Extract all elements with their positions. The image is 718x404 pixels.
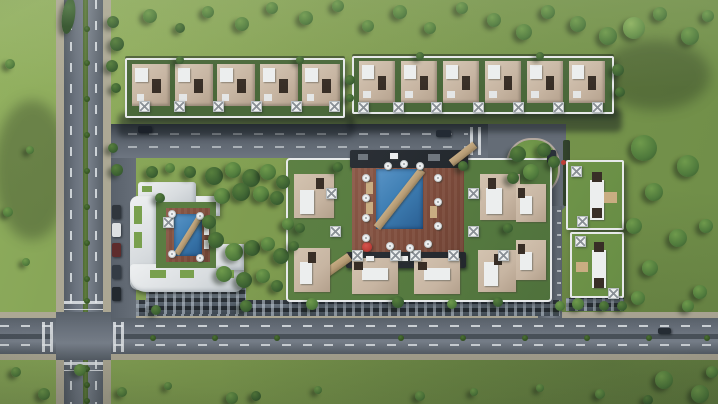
tree xyxy=(117,387,127,397)
pool-umbrella xyxy=(406,244,414,252)
median-shrub xyxy=(84,96,90,102)
roof-pergola xyxy=(592,102,603,113)
tree xyxy=(415,391,425,401)
tree xyxy=(226,392,238,404)
car xyxy=(658,328,671,334)
tree xyxy=(595,389,605,399)
pool-umbrella xyxy=(168,210,176,218)
roof-pergola xyxy=(358,102,369,113)
roof-pergola xyxy=(513,102,524,113)
tree xyxy=(107,16,119,28)
tree xyxy=(146,166,158,178)
tree xyxy=(555,301,565,311)
tree xyxy=(270,191,284,205)
tree xyxy=(653,7,667,21)
tree xyxy=(314,386,322,394)
roof-pergola xyxy=(163,217,174,228)
tree xyxy=(643,395,653,404)
median-shrub xyxy=(84,398,90,404)
tree xyxy=(111,164,123,176)
skylight xyxy=(308,252,316,263)
roof-pergola xyxy=(468,188,479,199)
roof-lounge xyxy=(520,252,532,270)
roof-pergola xyxy=(174,101,185,112)
roof-lounge xyxy=(362,268,388,280)
tree xyxy=(392,296,404,308)
median-shrub xyxy=(84,168,90,174)
tree xyxy=(164,382,172,390)
tree xyxy=(691,385,709,403)
scene xyxy=(0,0,718,404)
tree xyxy=(202,6,214,18)
roof-pergola xyxy=(352,250,363,261)
generated-scenery xyxy=(0,0,718,404)
roof-seating xyxy=(576,262,588,272)
tree xyxy=(184,166,196,178)
roof-lounge xyxy=(424,268,450,280)
median-shrub xyxy=(84,298,90,304)
tree xyxy=(702,10,714,22)
tree xyxy=(306,298,318,310)
roof-pergola xyxy=(468,226,479,237)
tree xyxy=(612,64,624,76)
parked-car xyxy=(112,265,121,279)
median-shrub xyxy=(84,382,90,388)
pool-umbrella xyxy=(362,214,370,222)
tree xyxy=(458,161,468,171)
tree xyxy=(516,24,532,40)
rooftop-equipment xyxy=(428,154,440,161)
roof-pergola xyxy=(390,250,401,261)
tree xyxy=(202,215,216,229)
roof-lounge xyxy=(484,262,498,286)
tree xyxy=(266,2,278,14)
tree xyxy=(143,9,157,23)
tree xyxy=(332,0,344,12)
median-shrub xyxy=(274,335,280,341)
roof-lounge xyxy=(300,262,312,284)
tree xyxy=(216,266,232,282)
roof-pergola xyxy=(431,102,442,113)
median-shrub xyxy=(584,335,590,341)
tree xyxy=(645,183,663,201)
tree xyxy=(669,229,687,247)
median-shrub xyxy=(460,335,466,341)
tree xyxy=(470,388,478,396)
roof-planter xyxy=(134,232,142,248)
tree xyxy=(615,87,625,97)
median-shrub xyxy=(84,204,90,210)
tree xyxy=(151,305,161,315)
roof-pergola xyxy=(577,216,588,227)
roof-pergola xyxy=(575,236,586,247)
median-shrub xyxy=(646,335,652,341)
roof-lounge xyxy=(300,190,314,214)
roof-pergola xyxy=(330,226,341,237)
tree xyxy=(3,207,13,217)
rooftop-equipment xyxy=(390,153,398,159)
tree xyxy=(108,143,118,153)
roof-planter xyxy=(180,270,194,278)
roof-pergola xyxy=(139,101,150,112)
roof-pergola xyxy=(393,102,404,113)
skylight xyxy=(592,208,602,218)
pool-table xyxy=(366,256,374,261)
median-shrub xyxy=(84,240,90,246)
tree xyxy=(631,291,645,305)
roof-pergola xyxy=(326,188,337,199)
tree xyxy=(706,366,718,378)
tree xyxy=(256,269,270,283)
tree xyxy=(240,300,252,312)
roof-pergola xyxy=(571,166,582,177)
tree xyxy=(276,175,290,189)
tree xyxy=(208,232,224,248)
parked-car xyxy=(112,223,121,237)
roof-pergola xyxy=(498,250,509,261)
tree xyxy=(570,16,586,32)
skylight xyxy=(594,278,604,288)
tree xyxy=(693,285,707,299)
roof-pergola xyxy=(448,250,459,261)
skylight xyxy=(488,178,496,189)
pool-umbrella xyxy=(362,234,370,242)
tree xyxy=(599,27,617,45)
tree xyxy=(536,384,544,392)
pool-umbrella xyxy=(400,160,408,168)
tree xyxy=(295,223,305,233)
tree xyxy=(251,391,261,401)
pool-umbrella xyxy=(362,174,370,182)
tree xyxy=(5,59,15,69)
pool-umbrella xyxy=(424,240,432,248)
tree xyxy=(176,56,184,64)
skylight xyxy=(594,242,604,252)
roof-lounge xyxy=(520,196,532,214)
tree xyxy=(235,17,249,31)
median-shrub xyxy=(212,335,218,341)
tree xyxy=(106,60,118,72)
sun-lounger xyxy=(366,182,373,194)
tree xyxy=(393,5,407,19)
car xyxy=(436,130,451,137)
tree xyxy=(111,83,121,93)
median-shrub xyxy=(398,335,404,341)
median-shrub xyxy=(84,26,90,32)
roof-pergola xyxy=(291,101,302,112)
tree xyxy=(299,11,313,25)
tree xyxy=(345,75,355,85)
tree xyxy=(110,37,124,51)
tree xyxy=(572,298,584,310)
tree xyxy=(536,52,544,60)
tree xyxy=(253,186,269,202)
skylight xyxy=(418,262,427,270)
parked-car xyxy=(112,205,121,219)
tree xyxy=(424,22,436,34)
skylight xyxy=(354,262,363,270)
tree xyxy=(74,364,86,376)
pool-umbrella xyxy=(386,242,394,250)
pool-umbrella xyxy=(416,162,424,170)
roof-pergola xyxy=(213,101,224,112)
tree xyxy=(456,2,468,14)
rooftop-equipment xyxy=(358,154,368,160)
tree xyxy=(677,155,699,177)
pool-umbrella xyxy=(434,198,442,206)
skylight xyxy=(592,172,602,182)
pool-umbrella xyxy=(196,254,204,262)
median-shrub xyxy=(84,276,90,282)
roof-planter xyxy=(142,186,152,192)
tree xyxy=(655,371,673,389)
tree xyxy=(681,27,699,45)
tree xyxy=(273,248,289,264)
roof-planter xyxy=(134,206,142,224)
tree xyxy=(165,163,175,173)
median-shrub xyxy=(704,335,710,341)
tree xyxy=(244,240,260,256)
roof-lounge xyxy=(486,188,502,214)
sun-lounger xyxy=(366,202,373,214)
roof-pergola xyxy=(473,102,484,113)
tree xyxy=(487,13,501,27)
tree xyxy=(626,218,642,234)
tree xyxy=(682,300,694,312)
pool-umbrella xyxy=(434,174,442,182)
tree xyxy=(22,258,30,266)
tree xyxy=(642,260,658,276)
tree xyxy=(362,20,374,32)
tree xyxy=(541,5,555,19)
parked-car xyxy=(112,287,121,301)
tree xyxy=(155,193,165,203)
tree xyxy=(271,280,283,292)
pool-umbrella xyxy=(362,194,370,202)
sun-lounger xyxy=(430,206,437,218)
parked-car xyxy=(112,243,121,257)
tree xyxy=(232,183,250,201)
skylight xyxy=(518,188,525,198)
pool-umbrella xyxy=(434,222,442,230)
roof-pergola xyxy=(329,101,340,112)
median-shrub xyxy=(84,60,90,66)
roof-seating xyxy=(604,192,617,203)
tree xyxy=(699,219,713,233)
median-shrub xyxy=(522,335,528,341)
roof-planter xyxy=(150,270,166,278)
roof-pergola xyxy=(251,101,262,112)
tree xyxy=(346,94,354,102)
skylight xyxy=(316,178,324,189)
tree xyxy=(296,56,304,64)
car xyxy=(138,126,152,133)
tree xyxy=(510,146,526,162)
tree xyxy=(599,301,609,311)
tree xyxy=(225,162,241,178)
tree xyxy=(631,135,657,161)
pool-umbrella xyxy=(168,250,176,258)
pool-umbrella xyxy=(384,162,392,170)
tree xyxy=(26,146,34,154)
tree xyxy=(289,241,299,251)
skylight xyxy=(518,244,525,254)
tree xyxy=(493,297,503,307)
tree xyxy=(537,143,551,157)
tree xyxy=(260,164,276,180)
tree xyxy=(236,272,252,288)
roof-pergola xyxy=(608,288,619,299)
tree xyxy=(205,167,223,185)
tree xyxy=(523,164,539,180)
median-shrub xyxy=(150,335,156,341)
tree xyxy=(617,301,627,311)
tree xyxy=(11,367,21,377)
tree xyxy=(175,23,185,33)
tree xyxy=(503,223,513,233)
tree xyxy=(261,237,275,251)
median-shrub xyxy=(84,132,90,138)
roof-pergola xyxy=(553,102,564,113)
tree xyxy=(214,188,230,204)
tree xyxy=(225,243,243,261)
tree xyxy=(416,52,424,60)
tree xyxy=(333,162,343,172)
tree xyxy=(507,172,519,184)
tree xyxy=(623,17,645,39)
tree xyxy=(38,388,50,400)
tree xyxy=(282,218,294,230)
tree xyxy=(548,156,560,168)
tree xyxy=(447,299,457,309)
